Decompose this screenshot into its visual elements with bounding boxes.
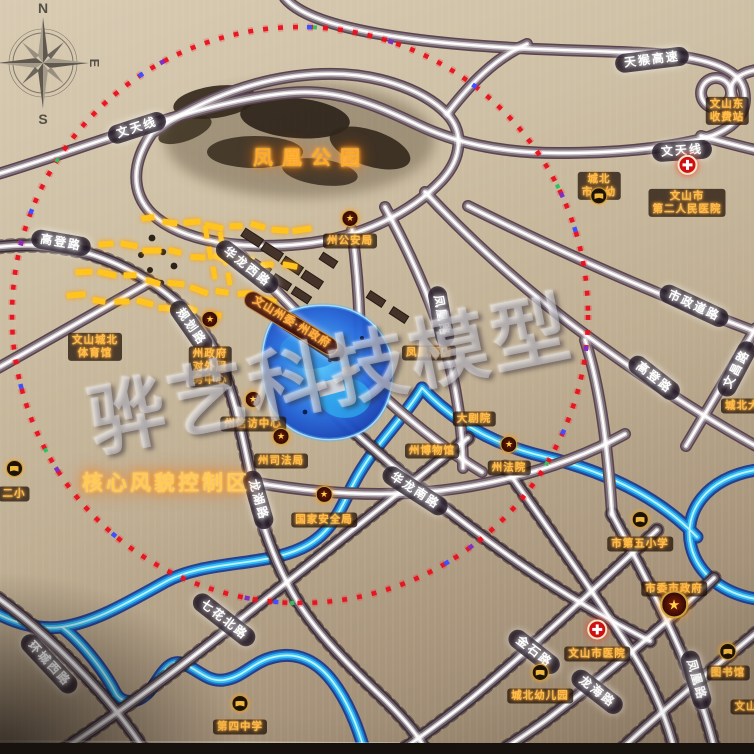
poi-州政府: ★州政府对外服务中心 xyxy=(189,346,232,387)
star-icon: ★ xyxy=(660,590,688,618)
poi-label-line: 文山 xyxy=(735,700,754,713)
poi-label: 国家安全局 xyxy=(291,512,357,527)
poi-文山城北: 文山城北体育馆 xyxy=(68,333,122,361)
poi-label: 第四中学 xyxy=(213,719,267,734)
poi-州司法局: ★州司法局 xyxy=(254,453,308,468)
poi-label: 大剧院 xyxy=(453,411,496,426)
poi-label-line: 城北大道 xyxy=(725,399,754,412)
road-label-文天线: 文天线 xyxy=(105,110,168,147)
poi-大剧院: 大剧院 xyxy=(453,411,496,426)
poi-label: 州法院 xyxy=(488,460,531,475)
poi-文山东: 文山东收费站 xyxy=(706,97,749,125)
star-icon: ★ xyxy=(245,391,262,408)
poi-label-line: 对外服 xyxy=(193,360,228,373)
poi-凤凰酒店: 凤凰酒店 xyxy=(402,345,456,360)
poi-label-line: 文山州委·州政府 xyxy=(249,294,332,351)
poi-城北幼儿园: 城北幼儿园 xyxy=(507,688,573,703)
poi-label: 文山州委·州政府 xyxy=(241,288,342,358)
poi-州法院: ★州法院 xyxy=(488,460,531,475)
road-label-七花北路: 七花北路 xyxy=(189,590,259,651)
poi-label-line: 文山市 xyxy=(653,190,722,203)
poi-label-line: 市第五小学 xyxy=(611,537,669,550)
poi-州博物馆: 州博物馆 xyxy=(405,443,459,458)
school-icon xyxy=(232,695,249,712)
poi-label-line: 州博物馆 xyxy=(409,444,455,457)
poi-label: 文山东收费站 xyxy=(706,97,749,125)
poi-label-line: 凤凰酒店 xyxy=(406,346,452,359)
poi-label-line: 城北 xyxy=(582,173,617,186)
school-icon xyxy=(720,643,737,660)
poi-label: 州司法局 xyxy=(254,453,308,468)
poi-label-line: 第二人民医院 xyxy=(653,203,722,216)
poi-label: 凤凰酒店 xyxy=(402,345,456,360)
label-layer: 文天线文天线天猴高速高登路规划路华龙西路华龙北路华龙南路龙湖路凤凰路市政道路高登… xyxy=(0,0,754,754)
poi-label: 文山 xyxy=(731,699,754,714)
poi-label-line: 州司法局 xyxy=(258,454,304,467)
poi-label-line: 第四中学 xyxy=(217,720,263,733)
road-label-高登路: 高登路 xyxy=(30,228,92,258)
poi-市第五小学: 市第五小学 xyxy=(607,536,673,551)
poi-label-line: 务中心 xyxy=(193,374,228,387)
poi-二小: 二小 xyxy=(0,486,30,501)
poi-文山市医院: 文山市医院 xyxy=(564,646,630,661)
poi-label-line: 州政府 xyxy=(193,347,228,360)
poi-label: 文山市第二人民医院 xyxy=(649,189,726,217)
area-label-core_zone: 核心风貌控制区 xyxy=(82,467,250,497)
hospital-icon xyxy=(677,155,697,175)
school-icon xyxy=(6,460,23,477)
road-label-华龙西路: 华龙西路 xyxy=(212,237,282,298)
star-icon: ★ xyxy=(202,311,219,328)
poi-第四中学: 第四中学 xyxy=(213,719,267,734)
road-label-凤凰路: 凤凰路 xyxy=(426,285,456,347)
poi-图书馆: 图书馆 xyxy=(707,665,750,680)
poi-label: 城北大道 xyxy=(721,398,754,413)
poi-label: 城北幼儿园 xyxy=(507,688,573,703)
poi-label: 州公安局 xyxy=(323,233,377,248)
school-icon xyxy=(632,511,649,528)
poi-label-line: 城北幼儿园 xyxy=(511,689,569,702)
poi-label-line: 文山城北 xyxy=(72,334,118,347)
poi-label-line: 州公安局 xyxy=(327,234,373,247)
road-label-龙海路: 龙海路 xyxy=(567,666,626,718)
poi-label-line: 文山东 xyxy=(710,98,745,111)
school-icon xyxy=(591,187,608,204)
road-label-高登路: 高登路 xyxy=(624,352,683,404)
poi-label: 州博物馆 xyxy=(405,443,459,458)
road-label-天猴高速: 天猴高速 xyxy=(614,46,690,74)
poi-label-line: 州信访中心 xyxy=(224,417,282,430)
star-icon: ★ xyxy=(501,436,518,453)
poi-label: 市第五小学 xyxy=(607,536,673,551)
area-label-park: 凤凰公园 xyxy=(253,142,369,171)
poi-城北: 城北市一幼 xyxy=(578,172,621,200)
road-label-市政道路: 市政道路 xyxy=(656,282,731,331)
poi-文山市: 文山市第二人民医院 xyxy=(649,189,726,217)
poi-label-line: 大剧院 xyxy=(457,412,492,425)
road-label-文昌路: 文昌路 xyxy=(714,338,754,400)
poi-label: 州政府对外服务中心 xyxy=(189,346,232,387)
poi-label: 文山城北体育馆 xyxy=(68,333,122,361)
poi-国家安全局: ★国家安全局 xyxy=(291,512,357,527)
poi-文山: 文山 xyxy=(731,699,754,714)
illuminated-city-model-map: N S E 文天线文天线天猴高速高登路规划路华龙西路华龙北路华龙南路龙湖路凤凰路… xyxy=(0,0,754,754)
road-label-环城西路: 环城西路 xyxy=(17,630,82,697)
poi-label-line: 体育馆 xyxy=(72,347,118,360)
poi-城北大道: 城北大道 xyxy=(721,398,754,413)
poi-label-line: 图书馆 xyxy=(711,666,746,679)
table-edge xyxy=(0,743,754,754)
star-icon: ★ xyxy=(273,428,290,445)
poi-label-line: 二小 xyxy=(3,487,26,500)
poi-label-line: 国家安全局 xyxy=(295,513,353,526)
road-label-华龙南路: 华龙南路 xyxy=(379,463,452,520)
star-icon: ★ xyxy=(342,210,359,227)
poi-市委市政府: ★市委市政府 xyxy=(641,581,707,596)
poi-label-line: 州法院 xyxy=(492,461,527,474)
hospital-icon xyxy=(587,619,607,639)
poi-label: 二小 xyxy=(0,486,30,501)
star-icon: ★ xyxy=(316,486,333,503)
poi-州公安局: ★州公安局 xyxy=(323,233,377,248)
school-icon xyxy=(532,664,549,681)
poi-label: 图书馆 xyxy=(707,665,750,680)
poi-label: 文山市医院 xyxy=(564,646,630,661)
poi-文山州委·州政府: 文山州委·州政府 xyxy=(241,288,342,358)
poi-label-line: 文山市医院 xyxy=(568,647,626,660)
poi-label-line: 收费站 xyxy=(710,111,745,124)
